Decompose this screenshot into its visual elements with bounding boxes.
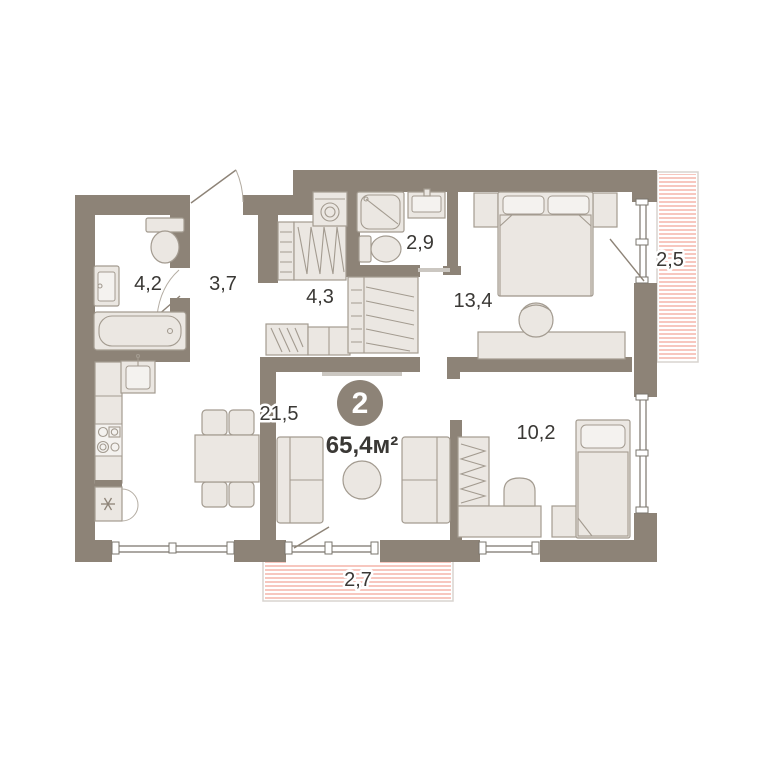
fridge-icon xyxy=(95,487,138,521)
dining-table xyxy=(195,435,259,482)
washing-machine-icon xyxy=(313,192,347,226)
floor-plan-page: 4,2 3,7 4,3 2,9 13,4 2,5 21,5 10,2 2,7 2… xyxy=(0,0,768,768)
balcony-door xyxy=(285,527,380,564)
wall-segment xyxy=(260,357,276,540)
wall-segment xyxy=(447,357,460,379)
stove-icon xyxy=(95,424,122,456)
window xyxy=(479,538,540,564)
room-area-label: 10,2 xyxy=(517,422,556,444)
room-area-label: 4,3 xyxy=(306,286,334,308)
shower-room-threshold xyxy=(418,268,450,272)
wall-segment xyxy=(310,170,657,192)
desk-chair xyxy=(504,478,535,506)
room-area-label: 3,7 xyxy=(209,273,237,295)
wall-segment xyxy=(258,215,278,283)
room-area-label: 13,4 xyxy=(454,290,493,312)
shoe-cabinet xyxy=(266,324,308,355)
kitchen-counter xyxy=(95,362,122,483)
room-area-label: 21,5 xyxy=(260,403,299,425)
window xyxy=(636,394,648,513)
floorplan-svg: 4,2 3,7 4,3 2,9 13,4 2,5 21,5 10,2 2,7 2… xyxy=(0,0,768,768)
dining-set xyxy=(195,410,259,507)
total-area: 65,4м² xyxy=(326,432,398,459)
wall-segment xyxy=(243,195,300,215)
nightstand xyxy=(474,193,498,227)
desk xyxy=(458,506,541,537)
toilet-icon xyxy=(359,236,401,262)
wardrobe-icon xyxy=(348,277,418,353)
room-area-label: 2,5 xyxy=(656,249,684,271)
shelf-unit xyxy=(278,222,294,280)
entry-door xyxy=(191,170,243,203)
console-table xyxy=(478,332,625,359)
round-rug xyxy=(343,461,381,499)
chair xyxy=(229,482,254,507)
sofa-left xyxy=(277,437,323,523)
bedroom-main-furniture xyxy=(474,192,625,359)
armchair-icon xyxy=(519,303,553,337)
nightstand xyxy=(593,193,617,227)
chair xyxy=(202,482,227,507)
sink-icon xyxy=(408,189,445,218)
room-count: 2 xyxy=(352,387,369,420)
wardrobe-icon xyxy=(294,222,346,280)
wall-segment xyxy=(260,357,420,372)
chair xyxy=(229,410,254,435)
wall-segment xyxy=(634,283,657,397)
nightstand xyxy=(552,506,577,537)
wall-segment xyxy=(95,350,190,362)
wall-segment xyxy=(346,265,420,277)
sofa-right xyxy=(402,437,450,523)
kitchen xyxy=(95,355,155,522)
wall-segment xyxy=(75,195,95,562)
wall-segment xyxy=(447,192,458,275)
room-area-label: 2,9 xyxy=(406,232,434,254)
apartment-badge: 2 65,4м² xyxy=(326,380,398,459)
window xyxy=(112,538,234,564)
double-bed-icon xyxy=(498,192,593,296)
dresser xyxy=(308,327,350,355)
wardrobe-icon xyxy=(458,437,489,506)
chair xyxy=(202,410,227,435)
single-bed-icon xyxy=(576,420,630,538)
room-area-label: 2,7 xyxy=(344,569,372,591)
sink-icon xyxy=(94,266,119,306)
shower-icon xyxy=(357,192,404,232)
bathtub-icon xyxy=(94,312,186,350)
counter-divider xyxy=(95,480,122,487)
sliding-door-threshold xyxy=(322,372,402,376)
room-area-label: 4,2 xyxy=(134,273,162,295)
